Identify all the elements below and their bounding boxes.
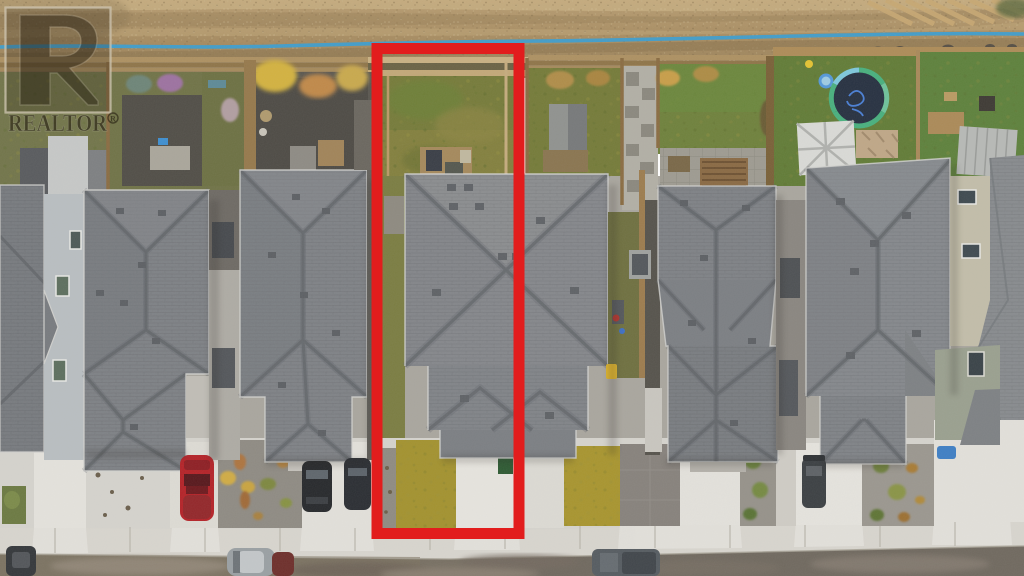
svg-text:REALTOR: REALTOR <box>8 111 108 137</box>
svg-text:R: R <box>110 115 116 124</box>
